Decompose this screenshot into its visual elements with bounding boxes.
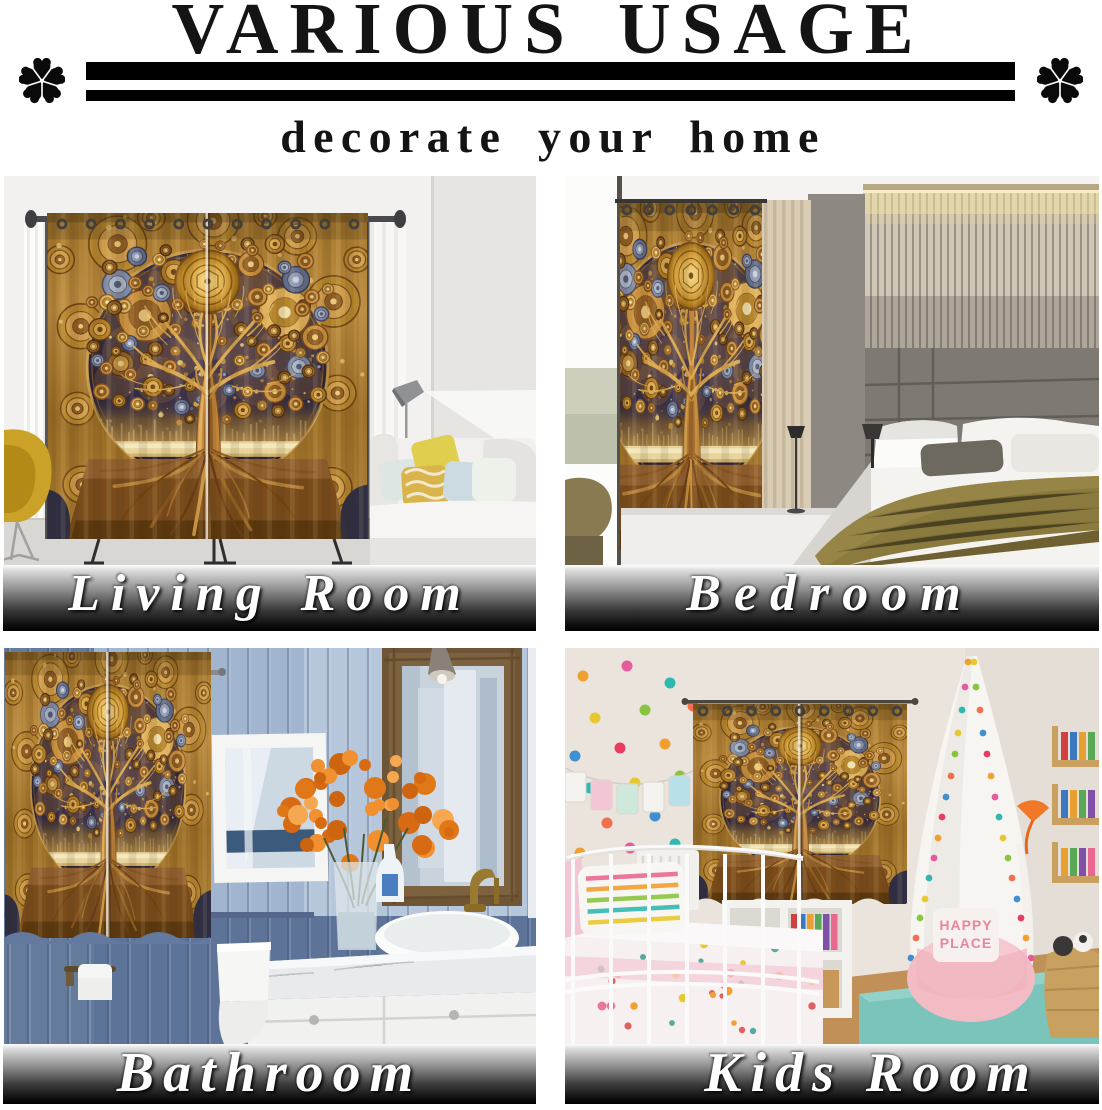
svg-text:HAPPY: HAPPY [939,917,992,933]
svg-text:PLACE: PLACE [940,935,992,951]
